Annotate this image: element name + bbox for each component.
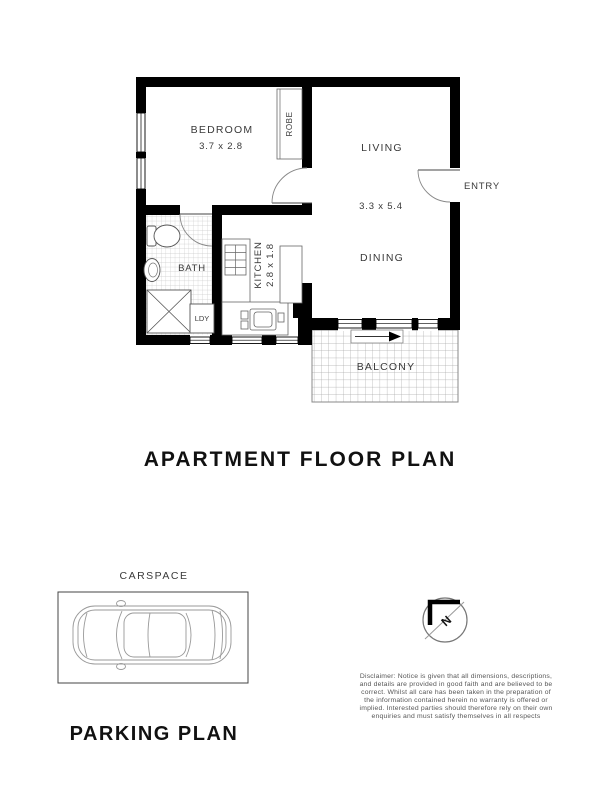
stove <box>225 245 246 275</box>
bath-label: BATH <box>178 263 206 274</box>
wall-right <box>450 77 460 330</box>
parking-plan-title: PARKING PLAN <box>70 723 239 745</box>
windows-bottom-wall <box>190 335 298 346</box>
disclaimer-line: correct. Whilst all care has been taken … <box>361 689 551 696</box>
wall-kitchen-dining-step <box>293 303 300 318</box>
living-dining-dimensions: 3.3 x 5.4 <box>359 201 403 212</box>
wall-top <box>136 77 460 87</box>
disclaimer-line: the information contained herein no warr… <box>364 697 548 704</box>
laundry-label: LDY <box>195 314 210 323</box>
north-letter: N <box>438 613 454 629</box>
floor-plan-drawing: BEDROOM 3.7 x 2.8 ROBE LIVING 3.3 x 5.4 … <box>0 0 600 800</box>
kitchen-dimensions: 2.8 x 1.8 <box>265 243 276 287</box>
kitchen-right-bench <box>280 246 302 303</box>
shower <box>147 290 191 333</box>
north-arrow-compass: N <box>423 598 467 642</box>
carspace-label: CARSPACE <box>120 570 189 582</box>
robe-label: ROBE <box>285 111 294 136</box>
windows-left-wall <box>135 113 147 189</box>
wall-corner-kitchen <box>298 318 312 345</box>
kitchen-label: KITCHEN <box>253 241 264 288</box>
bedroom-dimensions: 3.7 x 2.8 <box>199 141 243 152</box>
disclaimer-line: Disclaimer: Notice is given that all dim… <box>360 673 552 680</box>
disclaimer-text: Disclaimer: Notice is given that all dim… <box>360 673 553 720</box>
living-label: LIVING <box>361 142 403 154</box>
apartment-floor-plan-title: APARTMENT FLOOR PLAN <box>144 448 457 471</box>
disclaimer-line: enquiries and must satisfy themselves in… <box>372 713 541 720</box>
wall-bedroom-bottom <box>136 205 180 215</box>
entry-door <box>418 168 461 202</box>
basin <box>144 259 160 282</box>
dining-label: DINING <box>360 252 404 264</box>
parking-plan: CARSPACE PARKING PLAN <box>58 570 248 745</box>
entry-label: ENTRY <box>464 181 500 192</box>
balcony-label: BALCONY <box>357 361 416 373</box>
floor-plan-page: BEDROOM 3.7 x 2.8 ROBE LIVING 3.3 x 5.4 … <box>0 0 600 800</box>
disclaimer-line: implied. Interested parties should there… <box>360 705 553 712</box>
bedroom-door <box>272 168 313 203</box>
wall-bedroom-living <box>302 87 312 168</box>
bedroom-label: BEDROOM <box>191 124 254 136</box>
wall-kitchen-top <box>212 205 312 215</box>
toilet <box>147 225 180 247</box>
disclaimer-line: and details are provided in good faith a… <box>360 681 553 688</box>
